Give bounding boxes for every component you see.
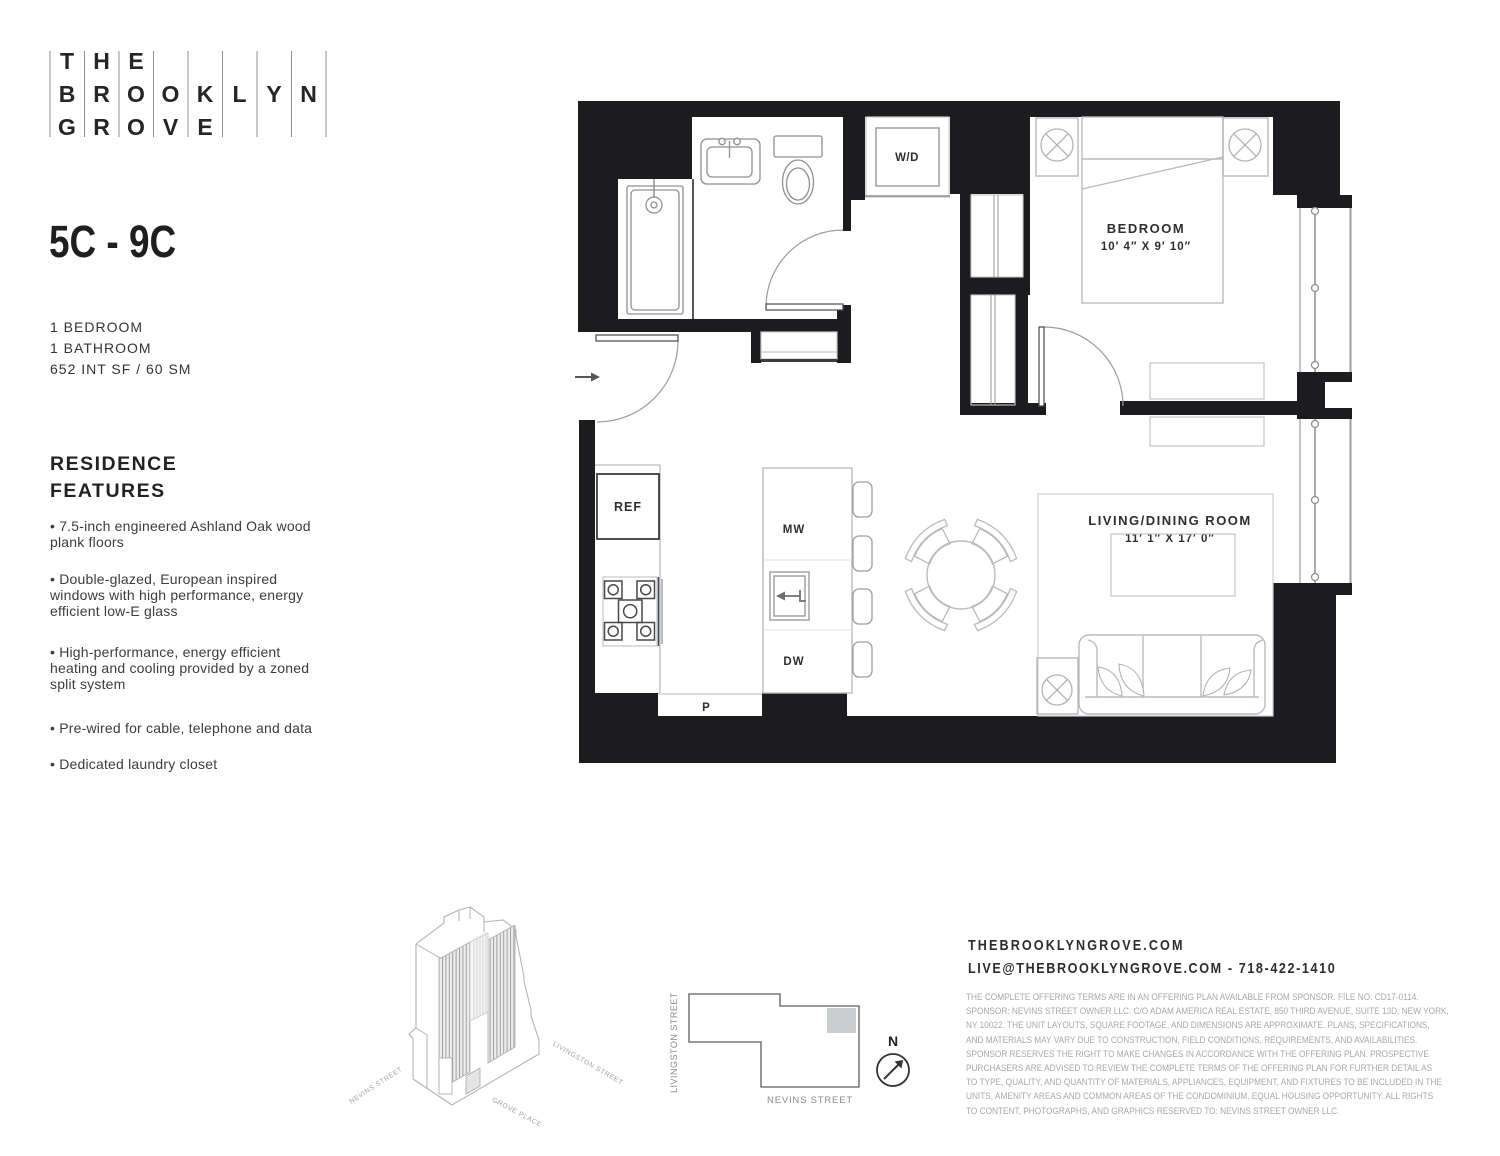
svg-text:NEVINS STREET: NEVINS STREET <box>348 1066 404 1106</box>
svg-text:10′ 4″ X 9′ 10″: 10′ 4″ X 9′ 10″ <box>1101 241 1191 253</box>
svg-text:11′ 1″ X 17′ 0″: 11′ 1″ X 17′ 0″ <box>1125 533 1215 545</box>
svg-text:L: L <box>232 81 246 107</box>
svg-text:DW: DW <box>783 656 804 668</box>
svg-text:H: H <box>93 48 110 74</box>
svg-text:GROVE PLACE: GROVE PLACE <box>491 1097 543 1129</box>
svg-text:V: V <box>163 114 179 140</box>
svg-text:REF: REF <box>614 500 642 514</box>
svg-text:R: R <box>93 81 110 107</box>
svg-text:Y: Y <box>266 81 281 107</box>
svg-text:T: T <box>60 48 74 74</box>
svg-text:E: E <box>197 114 212 140</box>
svg-text:N: N <box>300 81 317 107</box>
svg-text:P: P <box>702 702 710 714</box>
svg-text:E: E <box>128 48 143 74</box>
svg-text:LIVINGSTON STREET: LIVINGSTON STREET <box>551 1041 624 1087</box>
svg-text:K: K <box>197 81 214 107</box>
svg-text:B: B <box>59 81 76 107</box>
svg-text:O: O <box>162 81 180 107</box>
svg-text:N: N <box>888 1033 898 1049</box>
svg-text:LIVINGSTON STREET: LIVINGSTON STREET <box>669 992 679 1093</box>
svg-text:NEVINS STREET: NEVINS STREET <box>767 1095 853 1106</box>
svg-text:O: O <box>127 114 145 140</box>
svg-text:R: R <box>93 114 110 140</box>
svg-text:BEDROOM: BEDROOM <box>1107 221 1185 236</box>
svg-text:G: G <box>58 114 76 140</box>
svg-text:MW: MW <box>783 524 805 536</box>
svg-text:W/D: W/D <box>895 152 919 164</box>
svg-text:LIVING/DINING ROOM: LIVING/DINING ROOM <box>1088 513 1252 528</box>
svg-text:O: O <box>127 81 145 107</box>
